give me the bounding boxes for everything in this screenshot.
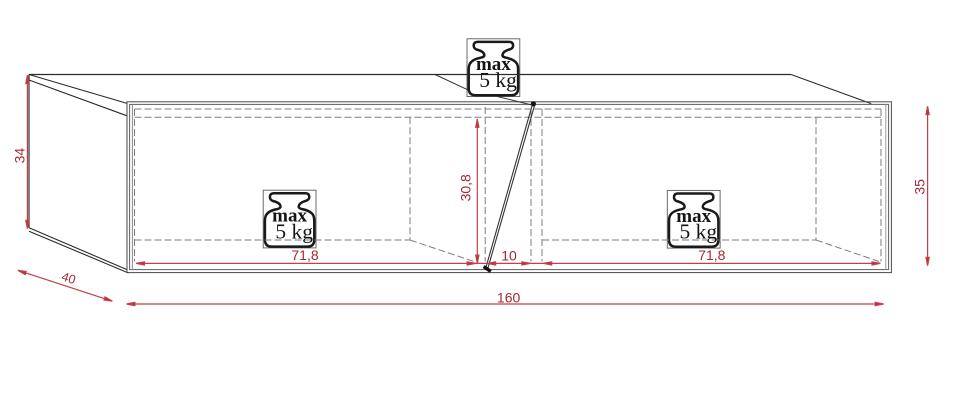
svg-text:35: 35: [912, 179, 928, 195]
svg-text:10: 10: [501, 247, 517, 263]
svg-text:30,8: 30,8: [457, 174, 473, 201]
svg-text:71,8: 71,8: [698, 247, 725, 263]
svg-text:34: 34: [12, 148, 28, 164]
svg-text:71,8: 71,8: [291, 247, 318, 263]
svg-text:160: 160: [497, 290, 521, 306]
